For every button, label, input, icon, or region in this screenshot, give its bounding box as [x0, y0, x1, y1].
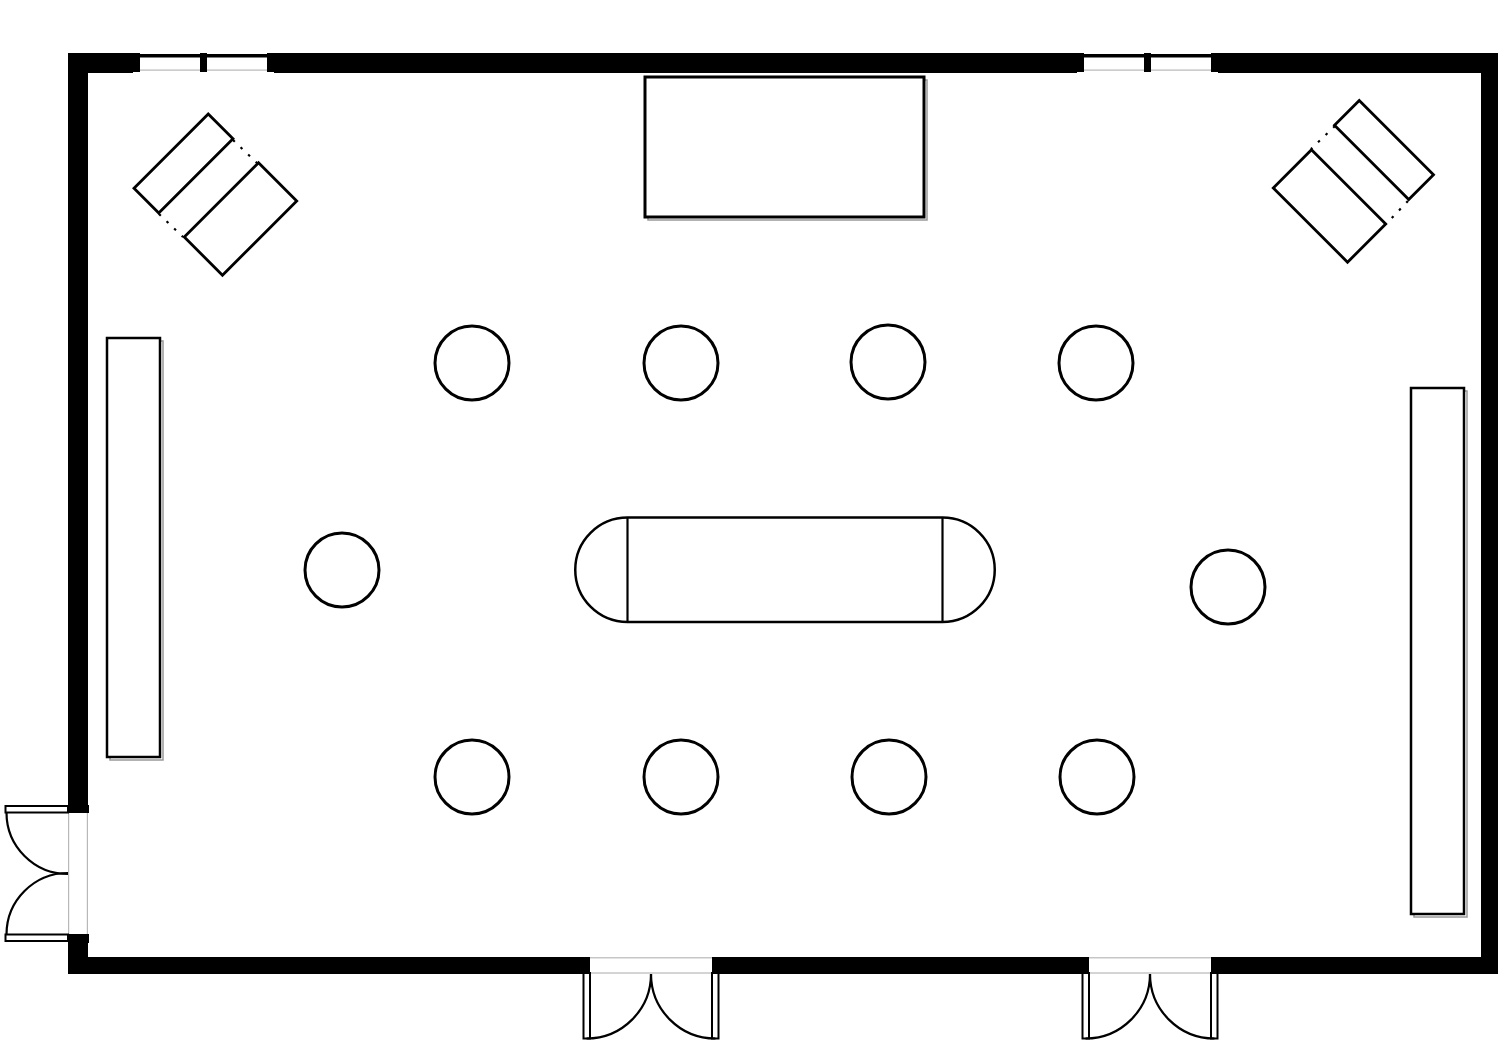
round-table-top-4	[1059, 326, 1133, 400]
door-bottom-center-swing-arc-left	[587, 974, 652, 1039]
door-bottom-right-leaf-right	[1211, 973, 1218, 1039]
door-left-leaf-top	[6, 806, 69, 813]
door-bottom-right-swing-arc-left	[1086, 974, 1151, 1039]
window-right-jamb-2	[1144, 53, 1151, 72]
door-bottom-center-leaf-left	[584, 973, 591, 1039]
door-bottom-right-face-line-inner	[1089, 957, 1211, 958]
window-right-jamb-3	[1211, 53, 1218, 72]
round-table-top-1	[435, 326, 509, 400]
round-table-bottom-4	[1060, 740, 1134, 814]
corner-table-top-left-wide	[184, 163, 296, 275]
counter-left	[107, 338, 160, 757]
floor-plan-canvas	[0, 0, 1500, 1043]
corner-top-left-dotted-link-2	[159, 214, 183, 237]
corner-table-top-right-wide	[1273, 150, 1385, 262]
corner-table-top-left-narrow	[134, 114, 233, 213]
door-bottom-center-face-line-outer	[590, 972, 712, 973]
door-bottom-center-leaf-right	[712, 973, 719, 1039]
round-table-middle-right	[1191, 550, 1265, 624]
door-bottom-right-swing-arc-right	[1150, 974, 1215, 1039]
round-table-top-3	[851, 325, 925, 399]
door-left-face-line-inner	[87, 813, 88, 934]
round-table-bottom-2	[644, 740, 718, 814]
wall-bottom-segment-3	[1218, 957, 1498, 974]
round-table-bottom-3	[852, 740, 926, 814]
round-table-bottom-1	[435, 740, 509, 814]
door-bottom-right-face-line-outer	[1089, 972, 1211, 973]
wall-left-segment-upper	[68, 53, 88, 805]
round-table-top-2	[644, 326, 718, 400]
corner-table-top-right-narrow	[1335, 101, 1434, 200]
wall-bottom-segment-2	[719, 957, 1082, 974]
window-left-jamb-1	[133, 53, 140, 72]
window-left-jamb-2	[200, 53, 207, 72]
door-left-swing-arc-top	[7, 813, 69, 875]
window-right-jamb-1	[1077, 53, 1084, 72]
door-bottom-center-jamb-left	[583, 957, 590, 974]
conference-table	[575, 518, 994, 623]
door-left-swing-arc-bottom	[7, 873, 69, 935]
wall-top-segment-2	[274, 53, 1077, 73]
stage	[645, 77, 924, 217]
door-left-jamb-top	[68, 805, 89, 813]
round-table-middle-left	[305, 533, 379, 607]
door-bottom-right-leaf-left	[1083, 973, 1090, 1039]
corner-top-left-dotted-link-1	[233, 140, 257, 163]
door-bottom-center-face-line-inner	[590, 957, 712, 958]
window-left-jamb-3	[267, 53, 274, 72]
floor-plan-svg	[0, 0, 1500, 1043]
door-left-face-line-outer	[68, 813, 69, 934]
counter-right	[1411, 388, 1464, 914]
wall-bottom-segment-1	[68, 957, 583, 974]
corner-top-right-dotted-link-2	[1386, 201, 1408, 224]
corner-top-right-dotted-link-1	[1311, 126, 1335, 149]
door-left-jamb-bottom	[68, 934, 89, 943]
wall-top-segment-3	[1218, 53, 1498, 73]
door-bottom-center-swing-arc-right	[651, 974, 716, 1039]
door-bottom-right-jamb-left	[1082, 957, 1089, 974]
door-left-leaf-bottom	[6, 935, 69, 942]
door-bottom-right-jamb-right	[1211, 957, 1218, 974]
wall-right	[1481, 53, 1498, 974]
door-bottom-center-jamb-right	[712, 957, 719, 974]
